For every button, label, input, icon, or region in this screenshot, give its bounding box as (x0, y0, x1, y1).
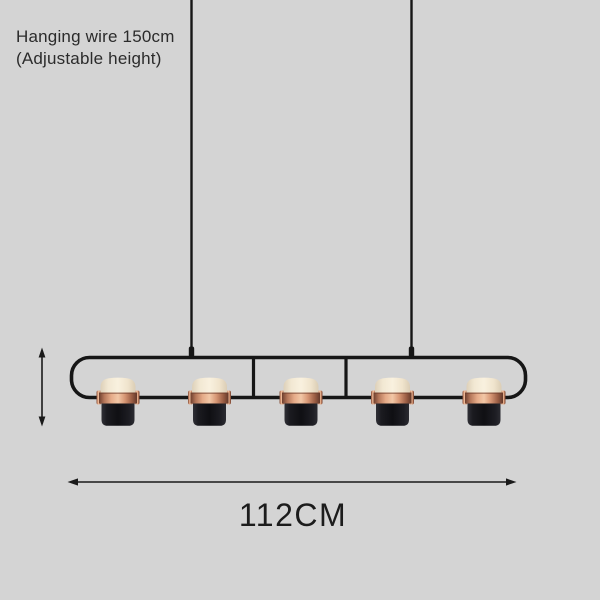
lamp-heads (97, 378, 506, 426)
arrowhead-right-icon (506, 478, 517, 485)
copper-band (465, 393, 503, 404)
lamp-head (97, 378, 140, 426)
width-dimension-arrow (68, 478, 517, 485)
arrowhead-left-icon (68, 478, 79, 485)
lamp-shade (101, 378, 136, 394)
copper-band (191, 393, 229, 404)
lamp-body (376, 404, 409, 426)
lamp-shade (192, 378, 227, 394)
product-image: Hanging wire 150cm (Adjustable height) (0, 0, 600, 600)
copper-band (374, 393, 412, 404)
lamp-head (280, 378, 323, 426)
copper-band (99, 393, 137, 404)
width-dimension-label: 112CM (153, 497, 433, 534)
arrowhead-up-icon (39, 348, 46, 358)
copper-band (282, 393, 320, 404)
lamp-body (193, 404, 226, 426)
lamp-body (285, 404, 318, 426)
lamp-body (468, 404, 501, 426)
lamp-shade (467, 378, 502, 394)
lamp-body (102, 404, 135, 426)
lamp-head (371, 378, 414, 426)
arrowhead-down-icon (39, 417, 46, 427)
lamp-shade (284, 378, 319, 394)
lamp-head (463, 378, 506, 426)
lamp-shade (375, 378, 410, 394)
height-dimension-arrow (39, 348, 46, 427)
lamp-head (188, 378, 231, 426)
